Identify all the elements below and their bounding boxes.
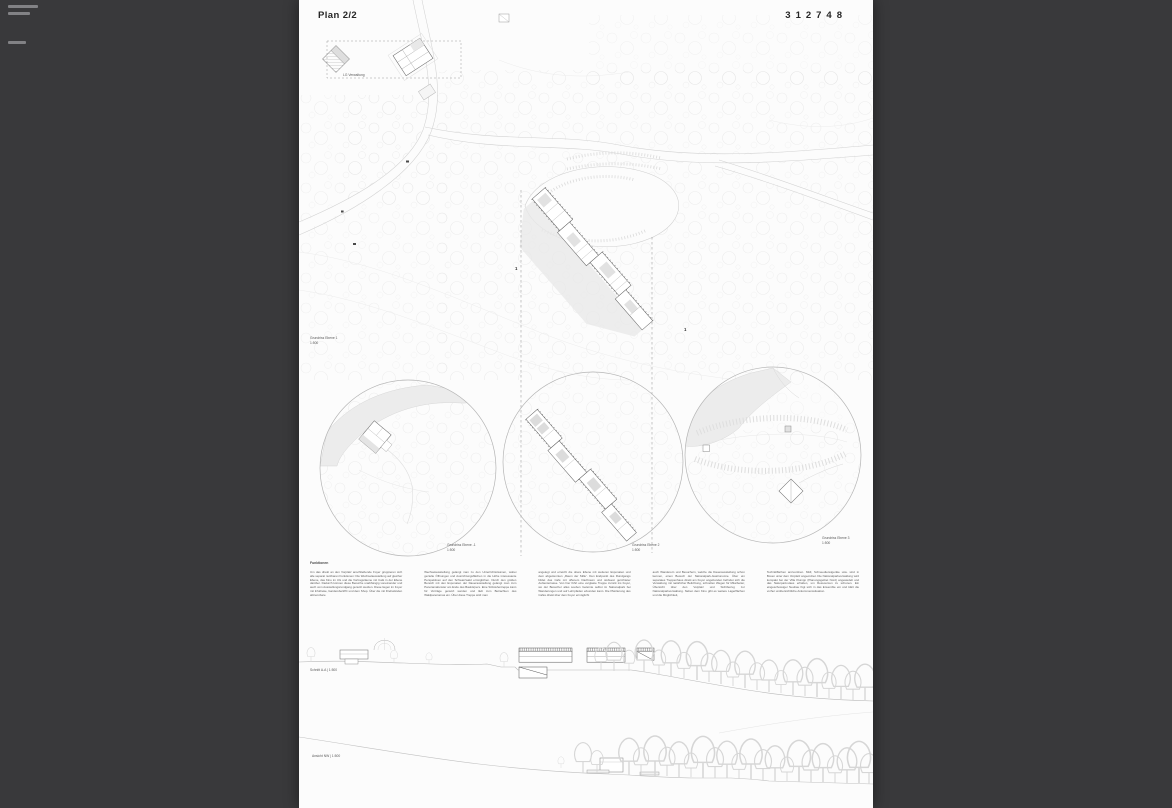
- level-circle-3: Grundriss Ebene 3 1:500: [685, 367, 862, 545]
- site-plan-title: Grundriss Ebene 1: [310, 336, 338, 340]
- site-plan-scale: 1:500: [310, 341, 318, 345]
- plan-sheet: LG Verwaltung: [299, 0, 873, 808]
- level-circle-minus1: Grundriss Ebene -1 1:500: [320, 380, 496, 556]
- elevation-drawing: Ansicht NW | 1:500: [299, 712, 873, 784]
- description-column: auch Wanderern und Besuchern, welche die…: [653, 571, 745, 598]
- screen-artifact-mark: [8, 12, 30, 15]
- circle1-scale: 1:500: [447, 548, 455, 552]
- circle1-title: Grundriss Ebene -1: [447, 543, 476, 547]
- description-column: Technikflächen anzuordnen. Müll, Schneed…: [767, 571, 859, 598]
- small-house: [499, 14, 509, 22]
- description-heading: Funktionen: [310, 561, 859, 565]
- entry-number: 312748: [785, 10, 847, 21]
- description-column: angelegt und erreicht die obere Ebene mi…: [538, 571, 630, 598]
- screen-artifact-mark: [8, 41, 26, 44]
- presentation-board: LG Verwaltung: [0, 0, 1172, 808]
- section-drawing: Schnitt A-A | 1:500: [299, 638, 873, 701]
- section-label: Schnitt A-A | 1:500: [310, 668, 337, 672]
- circle3-scale: 1:500: [822, 541, 830, 545]
- elevation-label: Ansicht NW | 1:500: [312, 754, 340, 758]
- circle3-title: Grundriss Ebene 3: [822, 536, 850, 540]
- circle2-title: Grundriss Ebene 2: [632, 543, 660, 547]
- circle2-scale: 1:500: [632, 548, 640, 552]
- description-column: Um das direkt an den Vorplatz anschließe…: [310, 571, 402, 598]
- level-circle-2: Grundriss Ebene 2 1:500: [503, 372, 683, 552]
- page-title: Plan 2/2: [318, 10, 357, 21]
- screen-artifact-mark: [8, 5, 38, 8]
- architectural-drawing: LG Verwaltung: [299, 0, 873, 808]
- description-block: Funktionen Um das direkt an den Vorplatz…: [310, 561, 859, 598]
- description-column: Wechselausstellung gelangt man zu den Un…: [424, 571, 516, 598]
- hatched-building: [323, 46, 350, 73]
- inset-label: LG Verwaltung: [343, 73, 365, 77]
